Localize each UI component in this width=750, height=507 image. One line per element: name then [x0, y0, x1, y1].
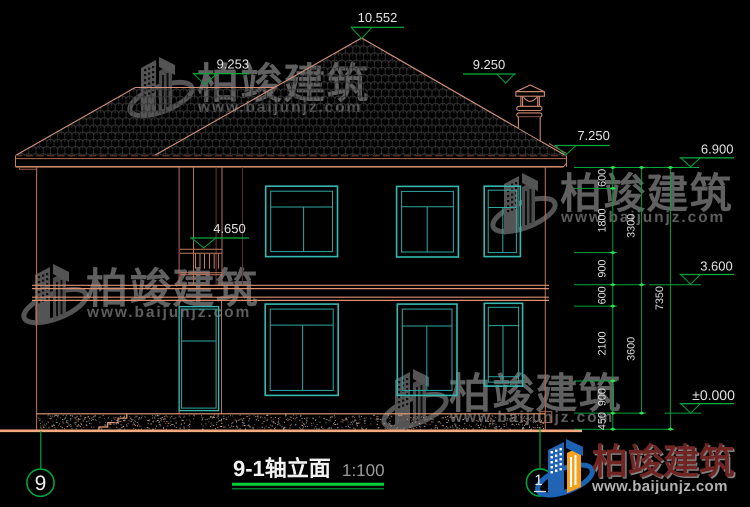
svg-text:7.250: 7.250 [577, 128, 610, 143]
svg-text:9.250: 9.250 [473, 57, 506, 72]
svg-text:www.baijunjz.com: www.baijunjz.com [86, 304, 251, 321]
svg-text:600: 600 [597, 169, 609, 187]
svg-text:900: 900 [597, 388, 609, 406]
svg-text:3.600: 3.600 [700, 258, 733, 273]
svg-text:10.552: 10.552 [358, 10, 398, 25]
svg-text:9-1轴立面: 9-1轴立面 [233, 456, 331, 481]
svg-text:3300: 3300 [625, 214, 637, 238]
svg-text:450: 450 [597, 412, 609, 430]
svg-text:6.900: 6.900 [701, 142, 734, 157]
svg-text:www.baijunjz.com: www.baijunjz.com [591, 478, 728, 495]
svg-text:1800: 1800 [597, 208, 609, 232]
svg-text:±0.000: ±0.000 [692, 387, 735, 403]
svg-text:7350: 7350 [654, 286, 666, 310]
svg-text:1:100: 1:100 [342, 461, 385, 480]
svg-text:900: 900 [597, 260, 609, 278]
svg-text:1: 1 [534, 472, 542, 489]
svg-text:4.650: 4.650 [213, 221, 246, 236]
svg-text:2100: 2100 [597, 331, 609, 355]
svg-text:9: 9 [35, 472, 47, 495]
svg-text:9.253: 9.253 [217, 57, 250, 72]
svg-text:柏竣建筑: 柏竣建筑 [592, 441, 735, 482]
svg-text:3600: 3600 [625, 337, 637, 361]
svg-text:600: 600 [597, 286, 609, 304]
svg-text:www.baijunjz.com: www.baijunjz.com [560, 209, 725, 226]
